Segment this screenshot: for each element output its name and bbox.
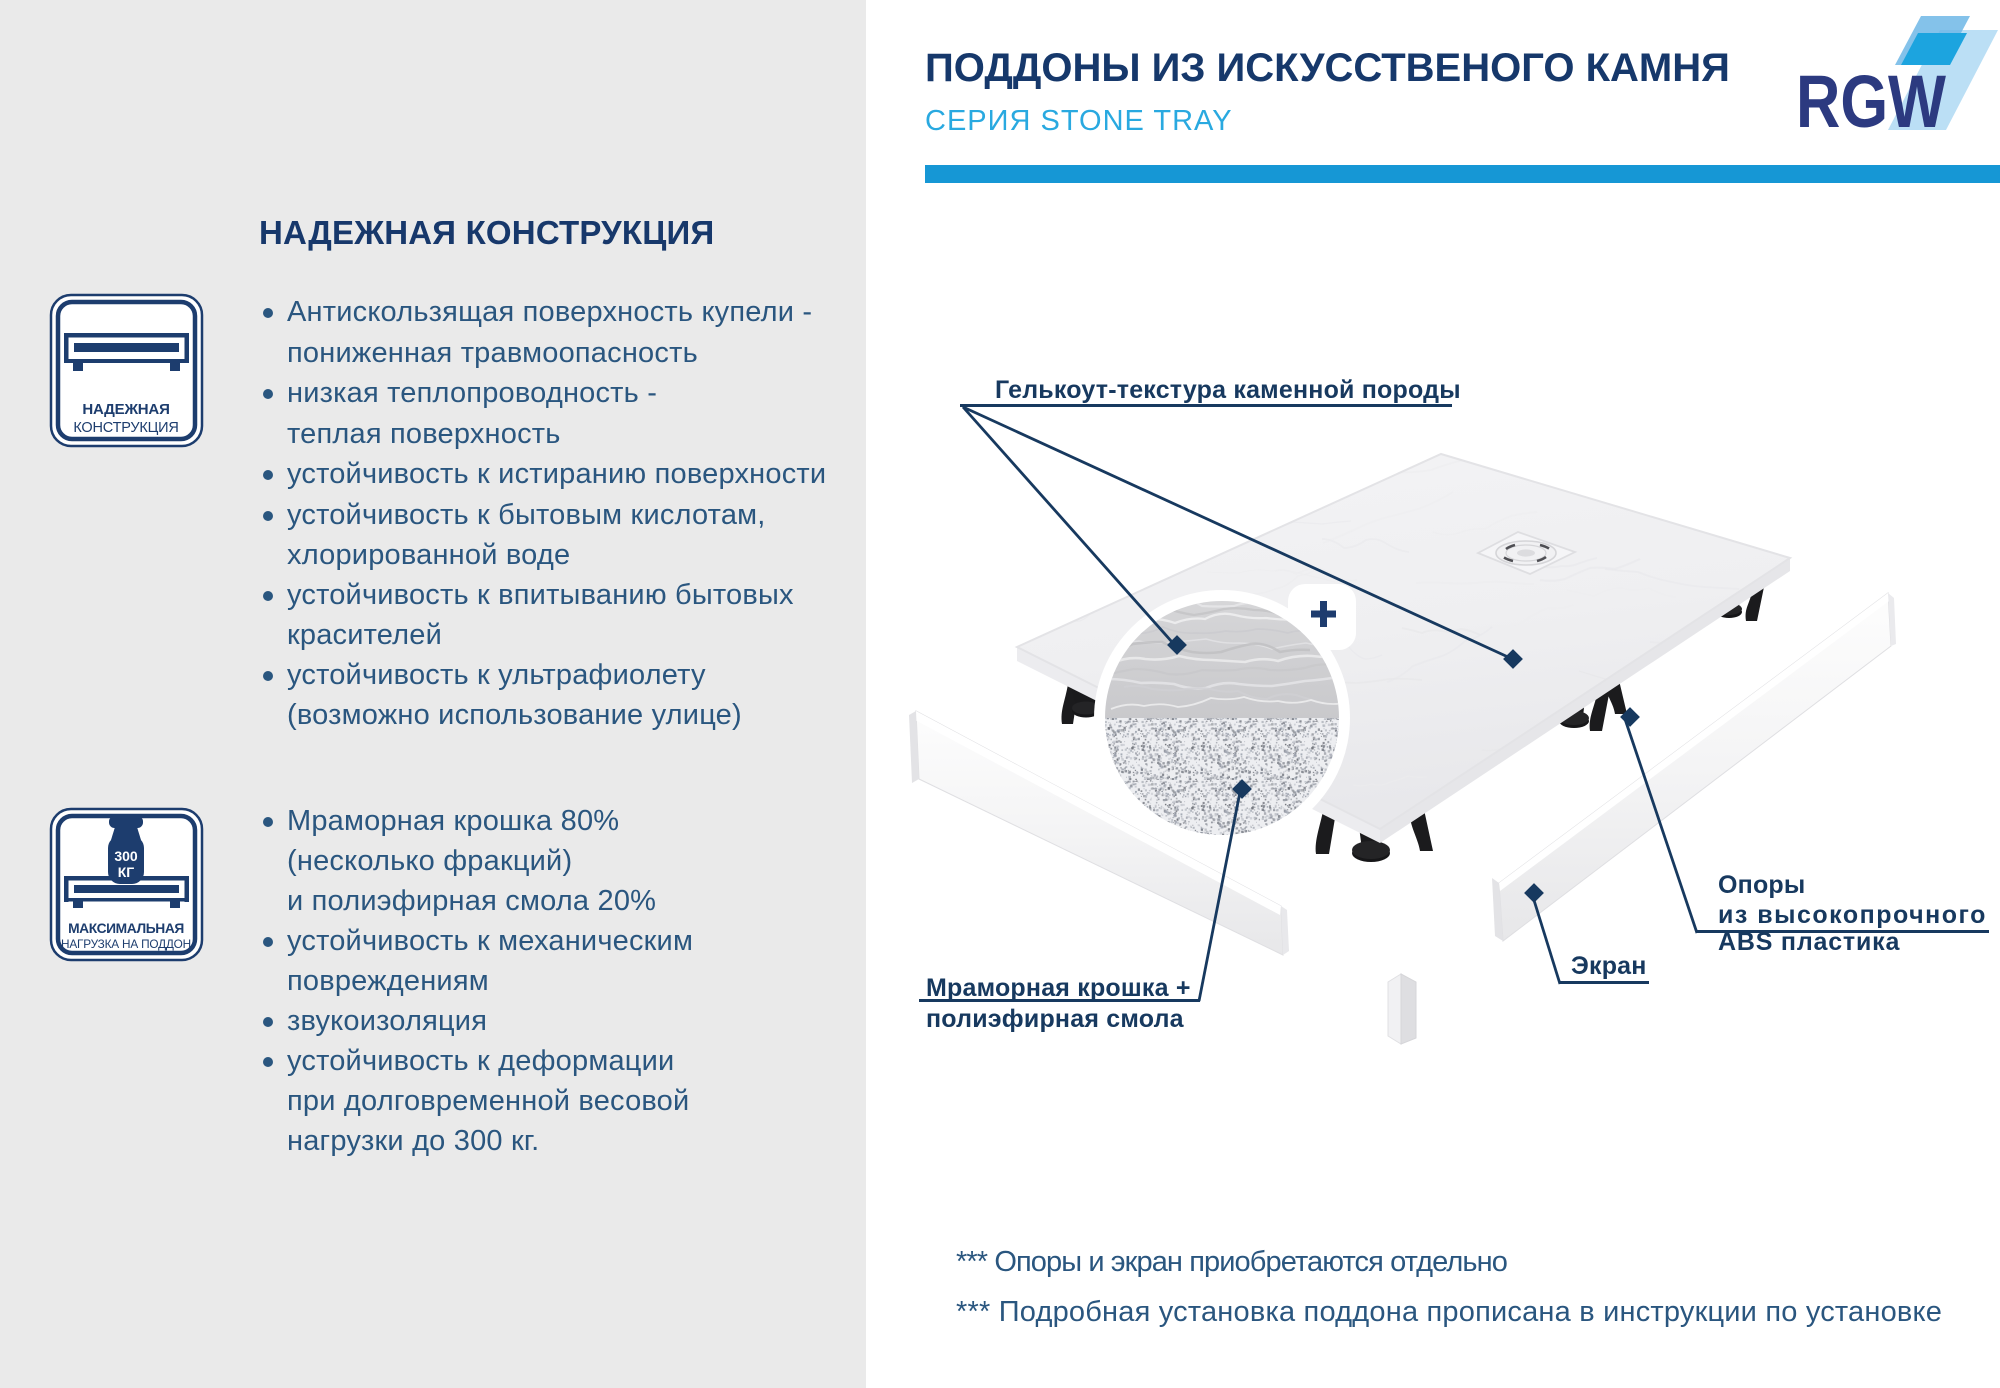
svg-text:НАГРУЗКА НА ПОДДОН: НАГРУЗКА НА ПОДДОН <box>61 937 191 951</box>
svg-text:НАДЕЖНАЯ: НАДЕЖНАЯ <box>82 401 169 418</box>
svg-text:300: 300 <box>114 848 138 864</box>
svg-text:КГ: КГ <box>118 864 135 880</box>
svg-text:КОНСТРУКЦИЯ: КОНСТРУКЦИЯ <box>73 420 178 436</box>
svg-text:МАКСИМАЛЬНАЯ: МАКСИМАЛЬНАЯ <box>68 921 184 936</box>
svg-text:RGW: RGW <box>1796 60 1946 140</box>
